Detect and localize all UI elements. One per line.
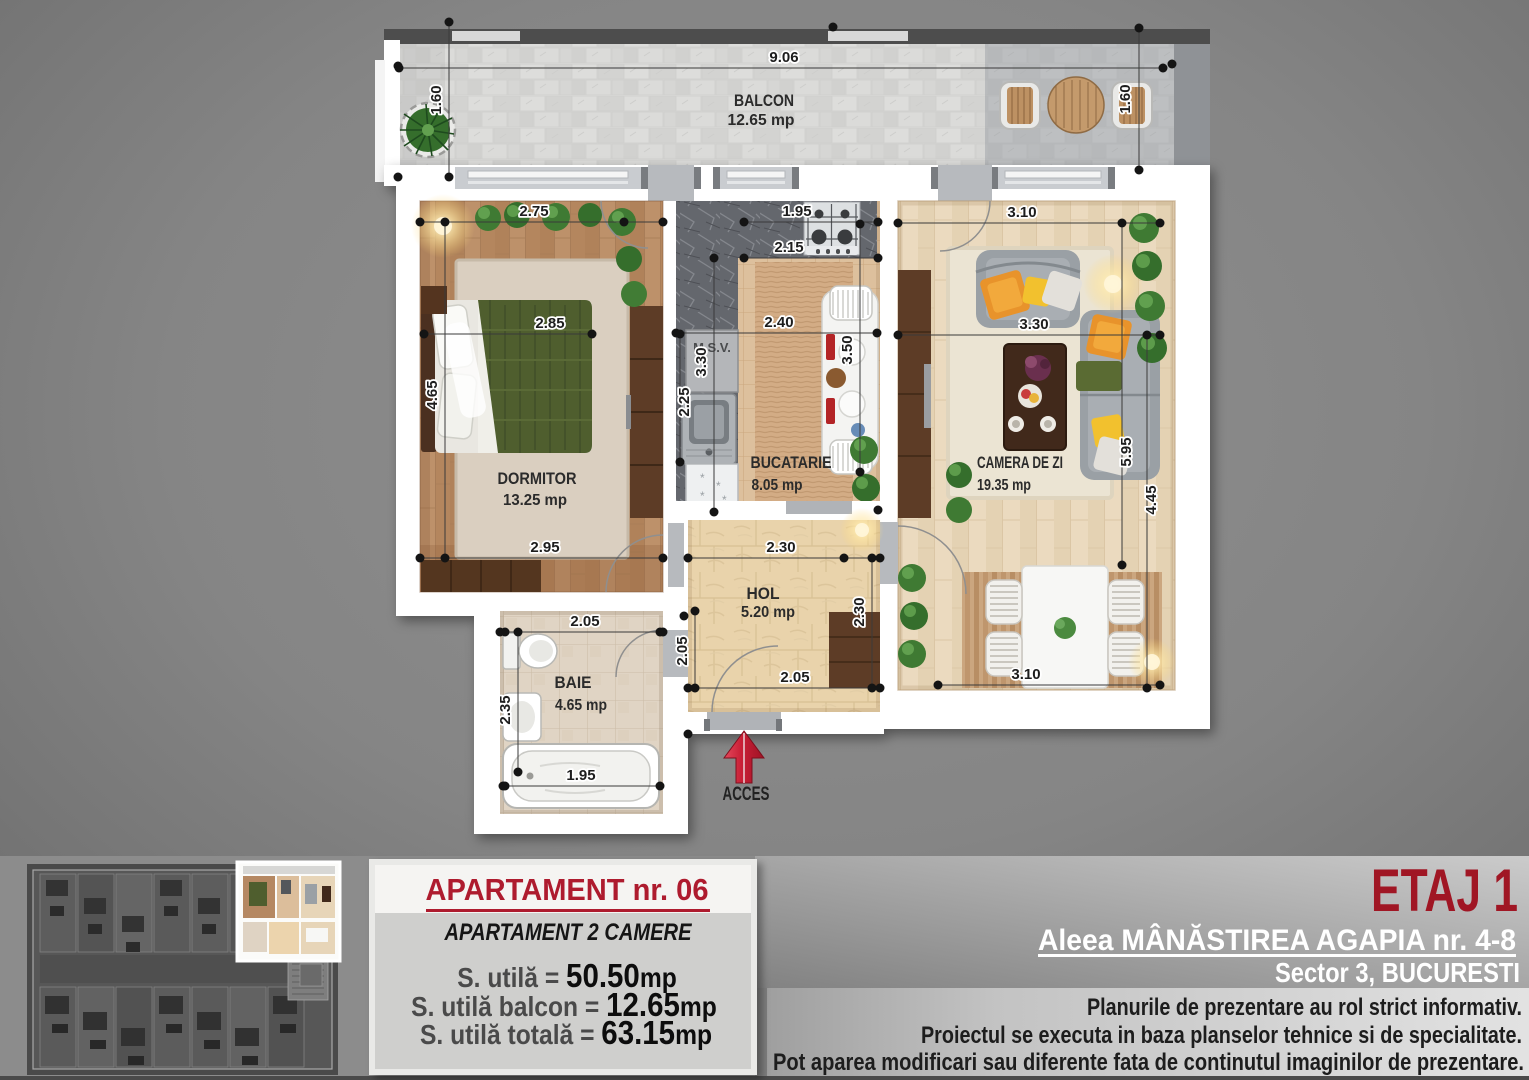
svg-text:2.40: 2.40 <box>764 314 793 331</box>
svg-text:APARTAMENT 2 CAMERE: APARTAMENT 2 CAMERE <box>444 919 692 946</box>
svg-text:3.30: 3.30 <box>1019 316 1048 333</box>
svg-text:*: * <box>716 479 721 493</box>
svg-text:BAIE: BAIE <box>555 673 592 692</box>
svg-text:3.10: 3.10 <box>1007 204 1036 221</box>
svg-text:12.65 mp: 12.65 mp <box>728 112 795 129</box>
svg-text:ETAJ 1: ETAJ 1 <box>1371 857 1518 924</box>
svg-text:2.05: 2.05 <box>674 636 691 665</box>
svg-text:ACCES: ACCES <box>723 784 770 805</box>
svg-text:3.10: 3.10 <box>1011 666 1040 683</box>
svg-text:*: * <box>700 471 705 485</box>
svg-text:2.75: 2.75 <box>519 203 548 220</box>
svg-text:2.35: 2.35 <box>497 695 514 724</box>
svg-text:*: * <box>700 489 705 503</box>
svg-text:APARTAMENT nr. 06: APARTAMENT nr. 06 <box>426 873 709 907</box>
svg-text:CAMERA DE ZI: CAMERA DE ZI <box>977 453 1063 472</box>
svg-text:Proiectul se executa in baza p: Proiectul se executa in baza planselor t… <box>921 1022 1522 1049</box>
svg-text:Planurile de prezentare au rol: Planurile de prezentare au rol strict in… <box>1087 994 1522 1021</box>
svg-text:4.65 mp: 4.65 mp <box>555 697 607 714</box>
svg-text:1.60: 1.60 <box>1117 84 1134 113</box>
svg-text:DORMITOR: DORMITOR <box>498 469 577 488</box>
svg-text:Pot aparea modificari sau dife: Pot aparea modificari sau diferente fata… <box>773 1049 1524 1076</box>
svg-text:5.20 mp: 5.20 mp <box>741 604 795 621</box>
svg-text:2.30: 2.30 <box>851 597 868 626</box>
svg-text:2.15: 2.15 <box>774 239 803 256</box>
svg-text:Sector 3, BUCURESTI: Sector 3, BUCURESTI <box>1275 957 1520 988</box>
svg-text:2.30: 2.30 <box>766 539 795 556</box>
svg-text:BALCON: BALCON <box>734 91 794 110</box>
svg-text:13.25 mp: 13.25 mp <box>503 492 567 509</box>
svg-text:2.95: 2.95 <box>530 539 559 556</box>
svg-text:9.06: 9.06 <box>769 49 798 66</box>
svg-text:8.05 mp: 8.05 mp <box>752 477 803 494</box>
svg-text:5.95: 5.95 <box>1118 437 1135 466</box>
svg-text:2.25: 2.25 <box>676 387 693 416</box>
svg-text:S. utilă totală = 63.15mp: S. utilă totală = 63.15mp <box>420 1013 712 1051</box>
svg-text:Aleea MÂNĂSTIREA AGAPIA nr. 4-: Aleea MÂNĂSTIREA AGAPIA nr. 4-8 <box>1038 923 1516 957</box>
svg-text:19.35 mp: 19.35 mp <box>977 477 1031 494</box>
svg-text:4.45: 4.45 <box>1143 485 1160 514</box>
svg-text:2.85: 2.85 <box>535 315 564 332</box>
svg-text:1.60: 1.60 <box>428 85 445 114</box>
svg-text:1.95: 1.95 <box>782 203 811 220</box>
svg-text:3.50: 3.50 <box>839 335 856 364</box>
svg-text:2.05: 2.05 <box>780 669 809 686</box>
svg-text:1.95: 1.95 <box>566 767 595 784</box>
svg-text:HOL: HOL <box>747 584 780 603</box>
svg-text:BUCATARIE: BUCATARIE <box>751 453 832 472</box>
svg-text:3.30: 3.30 <box>693 347 710 376</box>
svg-text:4.65: 4.65 <box>424 380 441 409</box>
svg-text:2.05: 2.05 <box>570 613 599 630</box>
